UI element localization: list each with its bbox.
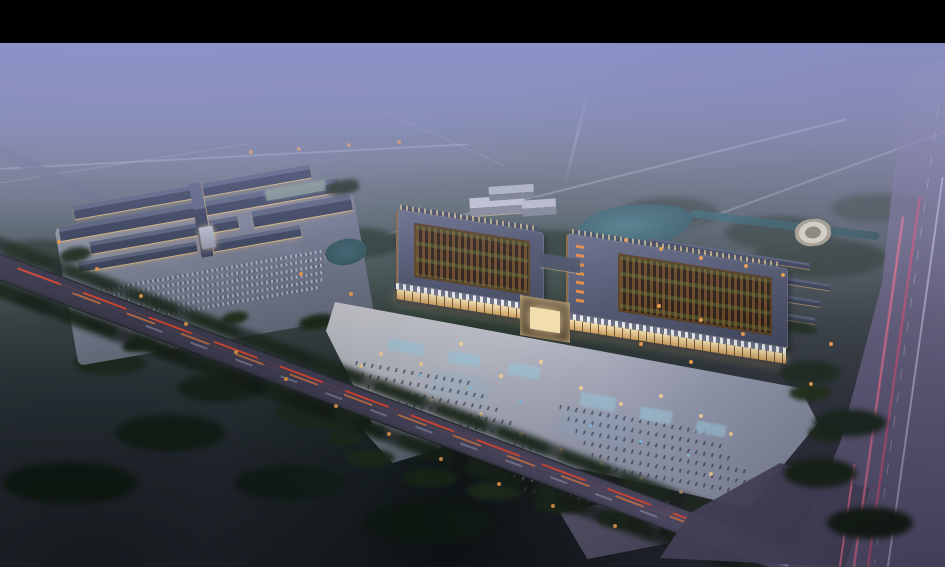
rendering-frame <box>0 0 945 567</box>
street-lamps <box>0 43 2 45</box>
aerial-scene <box>0 43 945 567</box>
white-building-block <box>522 198 557 216</box>
landmark-circle-plaza <box>794 217 833 248</box>
highway-trees <box>760 333 945 567</box>
roof-skylights <box>576 245 584 304</box>
gate-glow <box>530 307 560 334</box>
white-building-block <box>488 184 534 201</box>
gate-connector <box>520 295 570 343</box>
